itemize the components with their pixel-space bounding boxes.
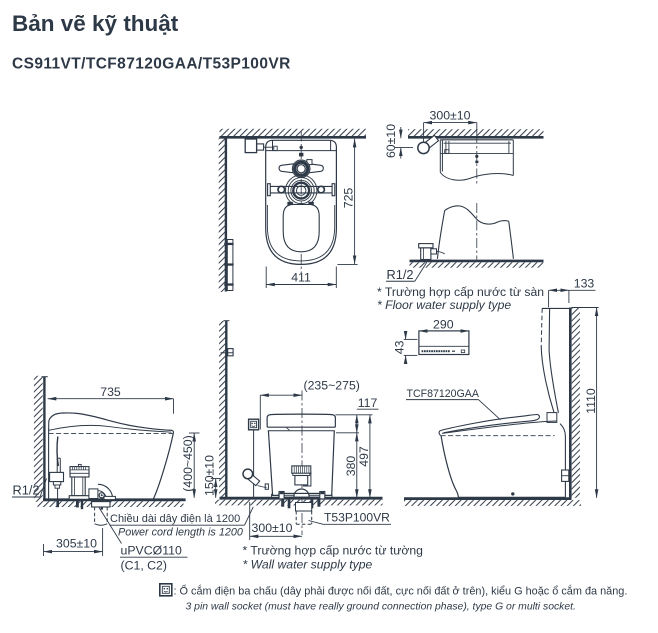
svg-text:(235~275): (235~275) [304,379,360,393]
svg-text:(C1, C2): (C1, C2) [121,559,167,573]
svg-text:117: 117 [358,396,378,410]
svg-text:(400~450): (400~450) [181,435,195,491]
svg-text:133: 133 [574,277,595,291]
svg-text:300±10: 300±10 [252,521,293,535]
svg-text:3 pin wall socket (must have r: 3 pin wall socket (must have really grou… [186,602,576,613]
svg-text:* Floor water supply type: * Floor water supply type [377,298,511,312]
svg-text:735: 735 [100,385,121,399]
svg-text:305±10: 305±10 [56,537,97,551]
svg-text:150±10: 150±10 [203,455,217,496]
svg-text:1110: 1110 [584,388,598,414]
svg-text:uPVCØ110: uPVCØ110 [121,544,182,558]
svg-text:CS911VT/TCF87120GAA/T53P100VR: CS911VT/TCF87120GAA/T53P100VR [12,56,291,73]
svg-text:290: 290 [433,317,454,331]
svg-text:497: 497 [357,446,371,467]
svg-text:* Trường hợp cấp nước từ tường: * Trường hợp cấp nước từ tường [243,544,423,558]
svg-text:R1/2: R1/2 [387,267,414,282]
svg-text:60±10: 60±10 [384,124,398,158]
svg-text:300±10: 300±10 [430,109,471,123]
svg-text:R1/2: R1/2 [13,483,40,498]
svg-text:725: 725 [341,188,355,209]
svg-text:Power cord length is 1200: Power cord length is 1200 [118,527,243,539]
svg-text:Bản vẽ kỹ thuật: Bản vẽ kỹ thuật [12,11,179,36]
svg-text:TCF87120GAA: TCF87120GAA [407,388,480,400]
svg-text:43: 43 [392,340,406,354]
svg-text:* Trường hợp cấp nước từ sàn: * Trường hợp cấp nước từ sàn [377,285,544,299]
svg-text:411: 411 [291,271,311,285]
svg-text:Chiều dài dây điện là 1200: Chiều dài dây điện là 1200 [110,513,240,525]
svg-text:* Wall water supply type: * Wall water supply type [243,558,373,572]
svg-text:T53P100VR: T53P100VR [324,511,390,525]
svg-text:: Ổ cắm điện ba chấu (dây phải: : Ổ cắm điện ba chấu (dây phải được nối … [174,585,628,598]
